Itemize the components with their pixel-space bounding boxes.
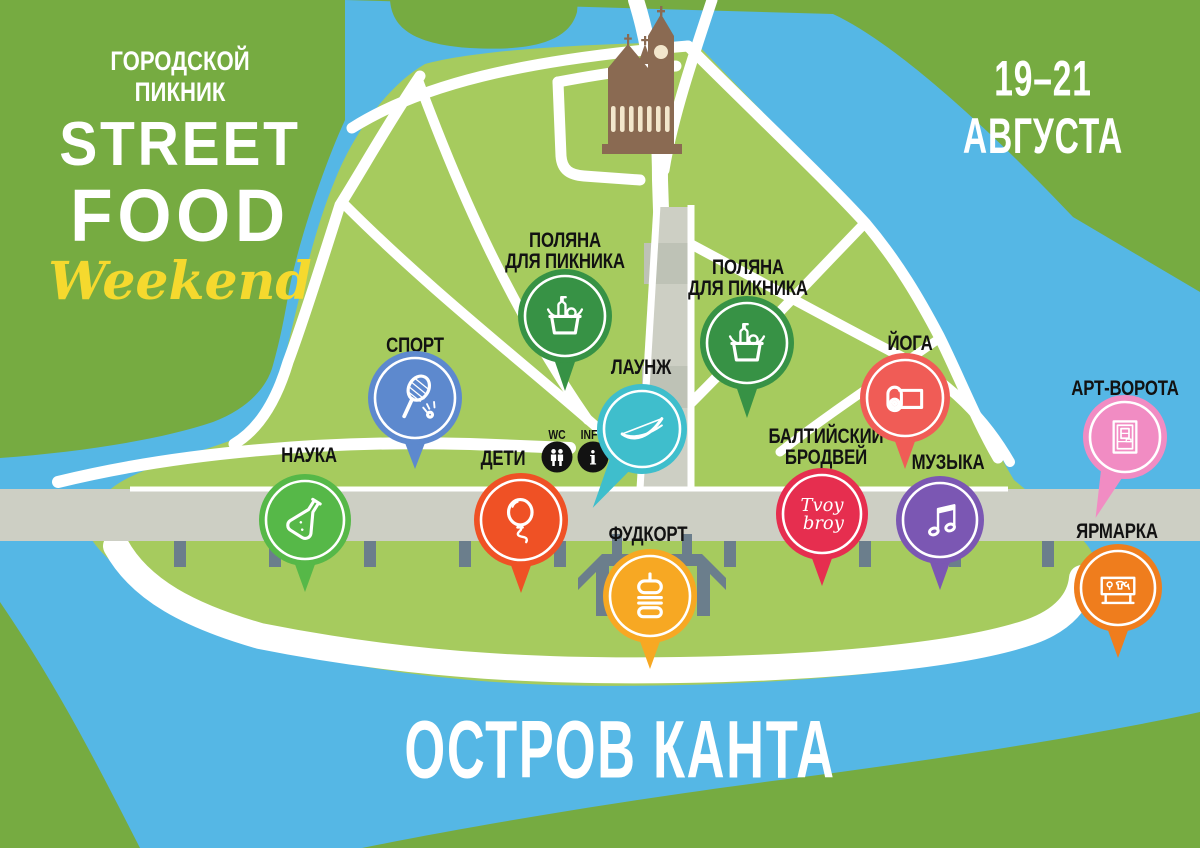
event-dates: 19–21 АВГУСТА	[919, 50, 1167, 165]
pin-food-court-marker	[570, 516, 730, 701]
island-name: ОСТРОВ КАНТА	[374, 702, 866, 797]
pin-lounge-marker	[562, 349, 722, 534]
title-street: STREET	[51, 112, 309, 178]
event-type-label: ГОРОДСКОЙ ПИКНИК	[65, 46, 295, 108]
pin-music-marker	[860, 440, 1020, 625]
title-food: FOOD	[48, 178, 311, 253]
poster-map: ГОРОДСКОЙ ПИКНИК STREET FOOD Weekend 19–…	[0, 0, 1200, 848]
pin-fair-marker	[1038, 508, 1198, 693]
event-logo: ГОРОДСКОЙ ПИКНИК STREET FOOD Weekend	[40, 46, 320, 311]
svg-text:broy: broy	[803, 513, 845, 534]
title-weekend: Weekend	[40, 253, 320, 311]
